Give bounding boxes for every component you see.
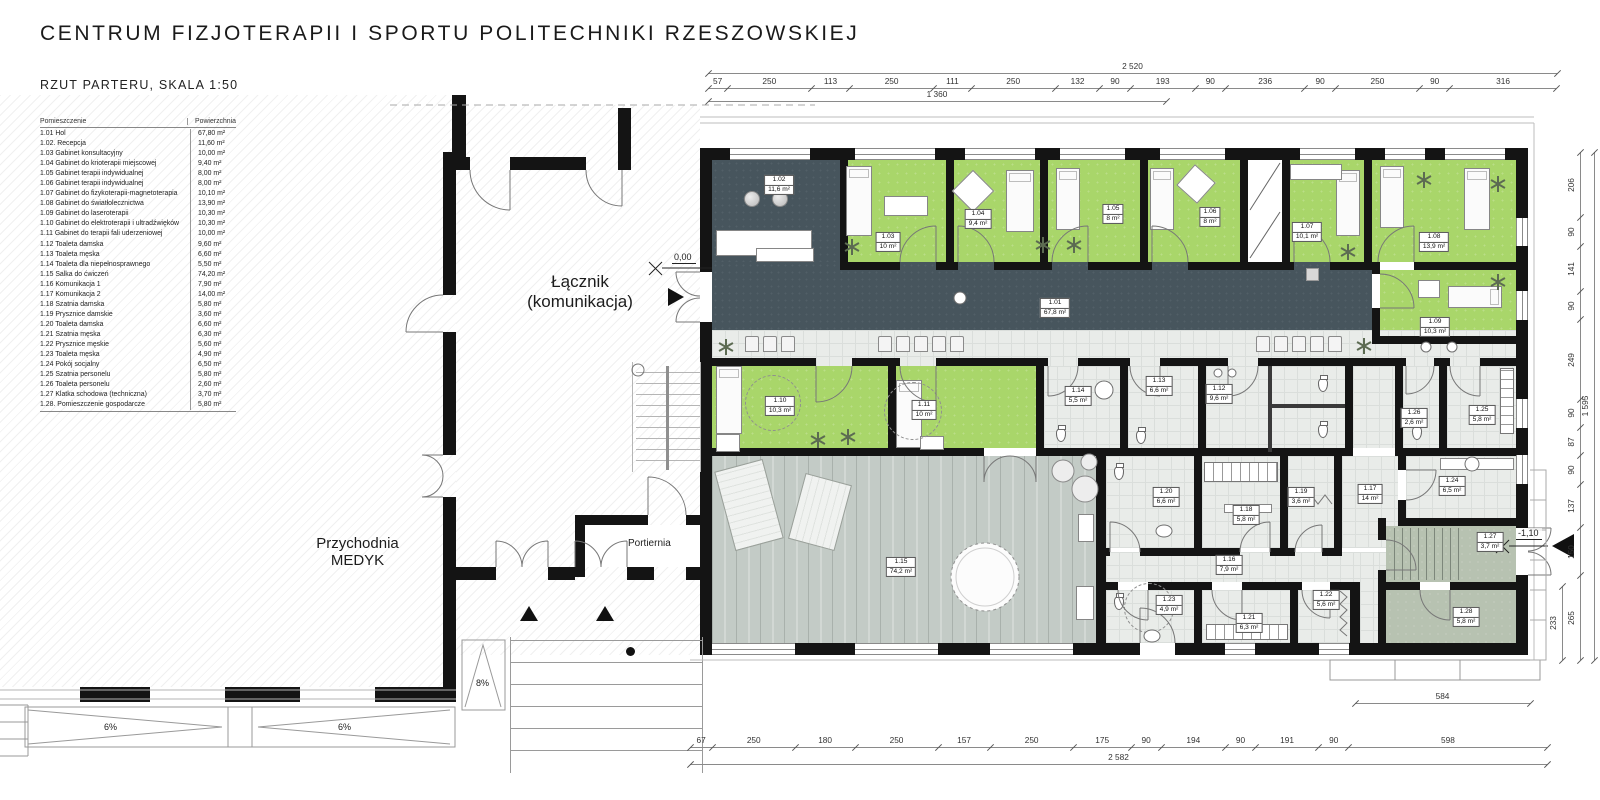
window [712,643,795,655]
dim-label: 90 [1236,735,1245,745]
furniture-tbl [756,248,814,262]
wall [994,262,1052,270]
stair-tread [1418,528,1419,580]
room-label-1.04: 1.049,4 m² [965,209,992,229]
stair-edge [700,362,701,472]
wall [1334,456,1342,548]
wall [1282,160,1290,262]
dim-label: 250 [747,735,761,745]
plant-icon [840,429,856,445]
dim-label: 90 [1206,76,1215,86]
page-title: CENTRUM FIZJOTERAPII I SPORTU POLITECHNI… [40,22,859,46]
wall [1088,262,1152,270]
plant-icon [1356,338,1372,354]
room-label-1.08: 1.0813,9 m² [1419,232,1449,252]
furniture-lockersv [1500,368,1514,434]
plant-icon [1416,172,1432,188]
wall [1270,548,1295,556]
wall [443,332,456,455]
dim-label: 132 [1071,76,1085,86]
dim-line [1355,703,1530,704]
waiting-chair [1292,336,1306,352]
floor-plan-sheet: CENTRUM FIZJOTERAPII I SPORTU POLITECHNI… [0,0,1600,800]
door-gap [1140,643,1175,655]
dim-label: 250 [890,735,904,745]
window [855,643,938,655]
plant-icon [1066,237,1082,253]
page-subtitle: RZUT PARTERU, SKALA 1:50 [40,78,238,92]
step-edge [702,637,703,773]
wall [1414,262,1516,270]
wall [627,567,654,580]
dim-label: 249 [1566,353,1576,367]
dim-label: 250 [762,76,776,86]
wall [80,687,150,702]
exterior-step [510,728,702,729]
wall [1240,160,1248,262]
floor [712,456,1096,643]
wall [225,687,300,702]
waiting-chair [896,336,910,352]
furniture-tbl [1076,586,1094,620]
floor [1248,160,1282,262]
dim-label: 250 [1025,735,1039,745]
stool [744,191,760,207]
wall [1480,358,1516,366]
wall [946,160,954,262]
dim-label: 180 [818,735,832,745]
exterior-platform [1330,660,1540,680]
furniture-tbl [716,434,740,452]
wall [1290,590,1298,643]
dim-label: 87 [1566,437,1576,446]
stair-tread [1458,528,1459,580]
wall [1096,456,1106,643]
room-label-1.02: 1.0211,6 m² [764,175,794,195]
room-label-1.06: 1.068 m² [1199,207,1220,227]
furniture-bed [1056,168,1080,230]
wall [1120,358,1128,456]
wall [1439,358,1447,456]
dim-label: 250 [885,76,899,86]
room-label-1.01: 1.0167,8 m² [1040,298,1070,318]
ramp-8-label: 8% [476,678,489,688]
wall [375,687,456,702]
wall [1322,548,1342,556]
stall-partition [1272,404,1345,408]
dim-label: 90 [1329,735,1338,745]
dim-label: 90 [1430,76,1439,86]
stair-tread [1402,528,1403,580]
dim-label: 1 595 [1580,396,1590,417]
wall [1516,575,1528,655]
floor [1386,590,1516,643]
window [1160,148,1225,160]
room-label-1.17: 1.1714 m² [1358,484,1383,504]
exterior-step [510,706,702,707]
waiting-chair [1256,336,1270,352]
room-label-1.24: 1.246,5 m² [1439,476,1466,496]
room-label-1.14: 1.145,5 m² [1065,386,1092,406]
waiting-chair [781,336,795,352]
furniture-bed [716,366,742,434]
wall [1036,358,1044,456]
window [1060,148,1125,160]
entrance-arrow-up-icon-1 [520,606,538,621]
plant-icon [1490,274,1506,290]
przychodnia-label: Przychodnia MEDYK [260,535,455,569]
room-label-1.11: 1.1110 m² [912,400,937,420]
dim-label: 67 [696,735,705,745]
dim-label: 2 520 [1122,61,1143,71]
dim-label: 113 [824,76,837,86]
dim-label: 137 [1566,499,1576,513]
furniture-col [1306,268,1319,281]
stair-rail [666,366,669,470]
wall [1194,590,1202,643]
furniture-tbl [920,436,944,450]
plant-icon [1490,176,1506,192]
window [1225,643,1255,655]
wall [1106,548,1110,556]
wall [936,262,958,270]
stair-tread [1410,528,1411,580]
wall [1330,582,1350,590]
window [1385,148,1425,160]
wall [452,95,466,157]
wall [1194,456,1202,548]
dim-label: 141 [1566,262,1576,276]
furniture-bed [846,166,872,236]
dim-label: 194 [1186,735,1200,745]
stair-tread [1394,528,1395,580]
exterior-side-landing [1530,470,1546,660]
wall [1516,428,1528,455]
room-label-1.19: 1.193,6 m² [1288,487,1315,507]
waiting-chair [1328,336,1342,352]
dim-label: 193 [1156,76,1170,86]
stair-tread [1434,528,1435,580]
wall [548,567,575,580]
dim-label: 316 [1496,76,1510,86]
furniture-lockers [1204,462,1278,482]
wall [1398,518,1516,526]
dim-label: 265 [1566,611,1576,625]
room-label-1.16: 1.167,9 m² [1216,555,1243,575]
ramp-far-left [0,705,28,756]
room-label-1.09: 1.0910,3 m² [1420,317,1450,337]
wall [936,358,1048,366]
wall [1378,570,1386,643]
wall [686,567,700,580]
dim-label: 90 [1110,76,1119,86]
room-label-1.07: 1.0710,1 m² [1292,222,1322,242]
dim-label: 1 360 [927,89,948,99]
wall [1198,358,1206,456]
furniture-bed [1150,168,1174,230]
room-label-1.20: 1.206,6 m² [1153,487,1180,507]
level-zero-label: 0,00 [672,252,696,264]
wall [1378,582,1420,590]
wall [700,322,712,655]
stair-tread [1426,528,1427,580]
wall [1395,448,1516,456]
plant-icon [1035,237,1051,253]
dim-label: 90 [1566,227,1576,236]
wall [1258,358,1406,366]
ramp-6b-label: 6% [338,722,351,732]
waiting-chair [914,336,928,352]
wall [1364,160,1372,262]
waiting-chair [878,336,892,352]
wall [1140,160,1148,262]
stair-tread [1450,528,1451,580]
wall [456,567,496,580]
floor [1360,552,1378,643]
room-label-1.28: 1.285,8 m² [1453,607,1480,627]
dim-line [1594,152,1595,660]
dim-label: 598 [1441,735,1455,745]
wall [510,157,586,170]
dim-line [690,764,1547,765]
plant-icon [844,239,860,255]
waiting-chair [1310,336,1324,352]
dim-label: 90 [1142,735,1151,745]
dim-label: 90 [1566,465,1576,474]
column-dot [626,647,635,656]
wall [1516,484,1528,528]
room-label-1.05: 1.058 m² [1102,204,1123,224]
dim-label: 90 [1316,76,1325,86]
dim-line [690,747,1547,748]
window [990,643,1073,655]
window [730,148,810,160]
dim-label: 206 [1566,178,1576,192]
stair-tread [1442,528,1443,580]
stair-edge [632,362,633,472]
wall [1372,262,1380,274]
wall [712,358,816,366]
wall [1242,582,1302,590]
dim-label: 250 [1370,76,1384,86]
wall [840,262,900,270]
dim-line [708,101,1166,102]
wall [1398,500,1406,518]
entrance-arrow-right-icon [668,288,684,306]
room-label-1.22: 1.225,6 m² [1313,590,1340,610]
dim-label: 90 [1566,301,1576,310]
wall [1188,262,1294,270]
wall [456,157,470,170]
wall [1106,582,1118,590]
room-label-1.12: 1.129,6 m² [1206,384,1233,404]
plant-icon [718,339,734,355]
furniture-bed [1006,170,1034,232]
dim-label: 2 582 [1108,752,1129,762]
window [1516,291,1528,320]
waiting-chair [1274,336,1288,352]
waiting-chair [932,336,946,352]
room-label-1.03: 1.0310 m² [876,232,901,252]
room-label-1.21: 1.216,3 m² [1236,613,1263,633]
window [1319,643,1349,655]
wall [443,152,456,295]
dim-line [708,88,1556,89]
dim-label: 584 [1436,691,1450,701]
furniture-tbl [884,196,928,216]
room-label-1.10: 1.1010,3 m² [765,396,795,416]
dim-label: 233 [1548,616,1558,630]
dim-label: 236 [1258,76,1272,86]
room-label-1.23: 1.234,9 m² [1156,595,1183,615]
wall [1398,456,1406,470]
wall [1516,246,1528,291]
furniture-tbl [1078,514,1094,542]
wall [1516,320,1528,399]
furniture-tbl [1440,458,1514,470]
exterior-step [510,662,702,663]
waiting-chair [950,336,964,352]
furniture-tbl [1418,280,1440,298]
floor [712,262,1372,330]
furniture-tbl [1290,164,1342,180]
room-label-1.26: 1.262,6 m² [1401,408,1428,428]
dim-label: 250 [1006,76,1020,86]
exterior-step [510,640,702,641]
wall [1378,518,1386,540]
window [855,148,935,160]
dim-label: 150 [1566,545,1576,559]
floor [1353,366,1395,448]
room-label-1.13: 1.136,6 m² [1146,376,1173,396]
room-label-1.15: 1.1574,2 m² [886,557,916,577]
furniture-bed [1380,166,1404,228]
ramp-west [25,707,455,747]
wall [1330,262,1378,270]
portiernia-label: Portiernia [628,538,671,549]
plant-icon [810,432,826,448]
wall [1350,582,1360,643]
waiting-chair [763,336,777,352]
dim-line [708,73,1557,74]
room-label-1.27: 1.273,7 m² [1477,532,1504,552]
dim-label: 90 [1566,409,1576,418]
wall [1516,148,1528,218]
window [1516,218,1528,246]
floor [1106,552,1398,582]
exterior-step [510,750,702,751]
room-label-1.25: 1.255,8 m² [1469,405,1496,425]
wall [700,148,712,272]
wall [1160,358,1228,366]
wall [686,515,700,525]
dim-label: 175 [1095,735,1109,745]
wall [1036,448,1353,456]
wall [1372,336,1516,344]
wall [618,108,631,170]
wall [575,515,648,525]
step-edge [510,637,511,773]
dim-line [1562,586,1563,660]
level-minus-label: -1,10 [1516,528,1542,540]
window [965,148,1035,160]
lacznik-label: Łącznik (komunikacja) [490,272,670,312]
wall [1450,582,1516,590]
window [1516,455,1528,484]
window [1445,148,1505,160]
stall-partition [1268,366,1272,452]
furniture-bed [1464,168,1490,230]
wall [1345,358,1353,456]
exterior-step [510,684,702,685]
ramp-6a-label: 6% [104,722,117,732]
dim-label: 157 [957,735,971,745]
wall [700,643,1528,655]
dim-label: 57 [713,76,722,86]
window [1300,148,1355,160]
wall [443,497,456,690]
dim-label: 111 [946,76,959,86]
dim-label: 191 [1280,735,1294,745]
room-label-1.18: 1.185,8 m² [1233,505,1260,525]
window [1516,399,1528,428]
plant-icon [1340,244,1356,260]
left-building-area [0,95,456,687]
waiting-chair [745,336,759,352]
entrance-arrow-up-icon-2 [596,606,614,621]
